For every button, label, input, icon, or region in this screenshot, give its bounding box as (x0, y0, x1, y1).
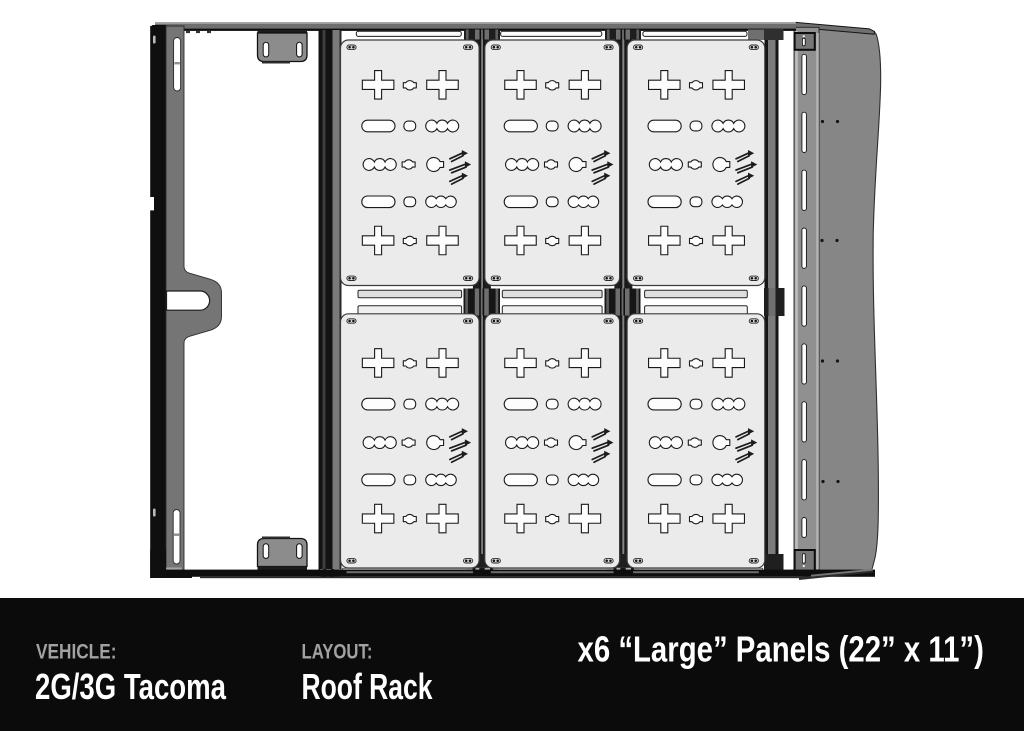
svg-text:2G/3G Tacoma: 2G/3G Tacoma (35, 666, 227, 706)
svg-text:Roof Rack: Roof Rack (302, 666, 433, 707)
svg-text:LAYOUT:: LAYOUT: (302, 641, 373, 664)
svg-text:VEHICLE:: VEHICLE: (36, 641, 116, 664)
svg-text:x6 “Large” Panels (22” x 11”): x6 “Large” Panels (22” x 11”) (578, 629, 984, 670)
